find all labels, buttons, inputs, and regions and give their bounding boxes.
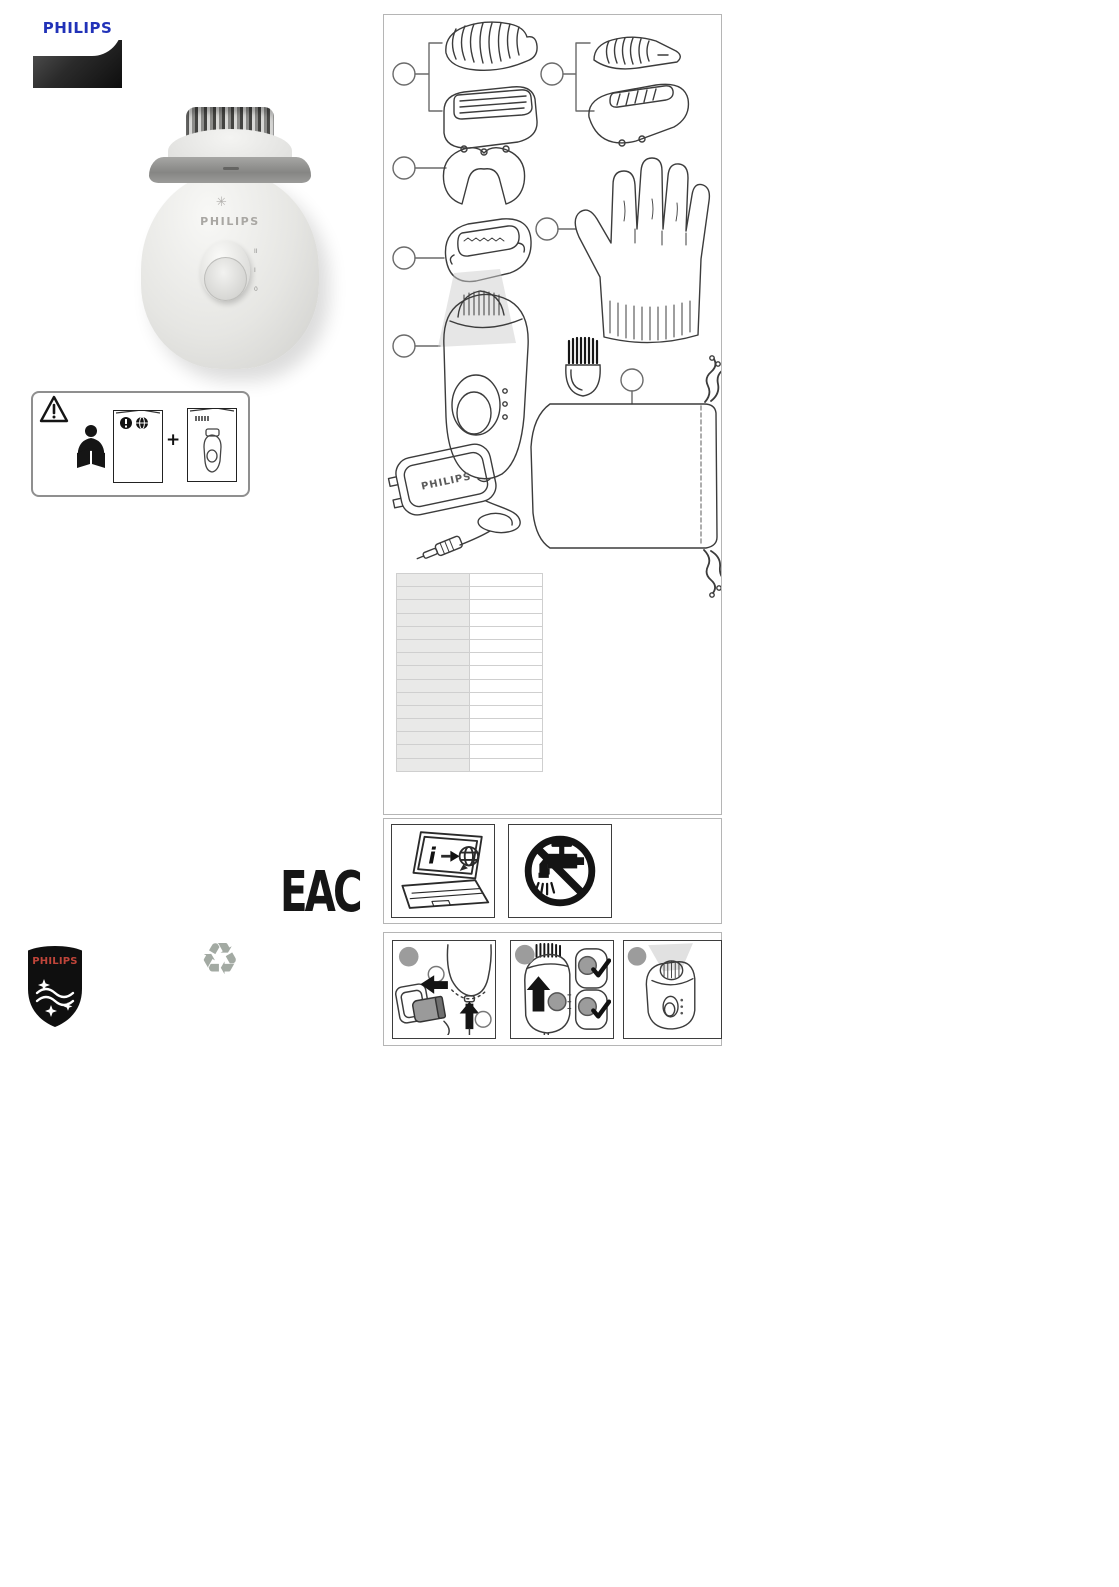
spec-value-cell (470, 719, 543, 732)
spec-label-cell (397, 600, 470, 613)
quick-start-steps-box (383, 932, 722, 1046)
spec-label-cell (397, 732, 470, 745)
reader-icon (73, 424, 109, 468)
spec-value-cell (470, 653, 543, 666)
table-row (397, 679, 543, 692)
massage-cap (443, 148, 524, 204)
adapter-brand-text: PHILIPS (420, 471, 472, 492)
spec-value-cell (470, 600, 543, 613)
svg-text:i: i (428, 844, 436, 870)
package-contents-box: PHILIPS (383, 14, 722, 815)
table-row (397, 653, 543, 666)
philips-wordmark: PHILIPS (43, 19, 113, 37)
plus-sign: + (166, 430, 180, 450)
user-manual-booklet-icon (187, 408, 237, 482)
spec-label-cell (397, 613, 470, 626)
shield-brand-text: PHILIPS (32, 956, 77, 967)
spec-label-cell (397, 692, 470, 705)
spec-label-cell (397, 587, 470, 600)
table-row (397, 758, 543, 771)
philips-logo: PHILIPS (33, 0, 122, 88)
table-row (397, 745, 543, 758)
table-row (397, 732, 543, 745)
light-beam (438, 269, 516, 347)
step-light (623, 940, 722, 1039)
online-info-laptop-icon: i (391, 824, 495, 918)
light-indicator-icon: ✳ (216, 195, 227, 210)
warning-triangle-icon (38, 394, 70, 426)
spec-label-cell (397, 745, 470, 758)
table-row (397, 639, 543, 652)
table-row (397, 626, 543, 639)
info-icons-box: i (383, 818, 722, 924)
dial-mark-1: I (254, 267, 256, 274)
philips-shield-logo: PHILIPS (18, 943, 92, 1031)
step-plug-in (392, 940, 496, 1039)
spec-value-cell (470, 613, 543, 626)
shaving-head (444, 87, 537, 155)
spec-value-cell (470, 666, 543, 679)
step-2-badge (515, 945, 535, 965)
dial-mark-0: 0 (254, 286, 258, 293)
band-slot (223, 167, 239, 170)
device-brand-text: PHILIPS (140, 215, 320, 228)
spec-value-cell (470, 732, 543, 745)
spec-value-cell (470, 639, 543, 652)
spec-label-cell (397, 719, 470, 732)
grey-band (149, 157, 311, 183)
spec-value-cell (470, 574, 543, 587)
epilator-photo: ✳ PHILIPS II I 0 (140, 95, 320, 370)
table-row (397, 613, 543, 626)
safety-booklet-icon (113, 410, 163, 483)
spec-value-cell (470, 587, 543, 600)
table-row (397, 692, 543, 705)
step-3-badge (628, 947, 647, 966)
table-row (397, 705, 543, 718)
spec-value-cell (470, 679, 543, 692)
spec-table (396, 573, 543, 772)
spec-label-cell (397, 758, 470, 771)
spec-table-body (397, 574, 543, 772)
table-row (397, 600, 543, 613)
dial-mark-2: II (254, 248, 258, 255)
eac-mark: EAC (280, 862, 360, 924)
logo-white-panel: PHILIPS (33, 0, 122, 56)
eac-text: EAC (280, 865, 360, 921)
step-1-badge (399, 947, 419, 967)
cleaning-brush (566, 338, 600, 396)
spec-label-cell (397, 574, 470, 587)
spec-value-cell (470, 705, 543, 718)
spec-label-cell (397, 639, 470, 652)
trimming-comb-attachment (594, 37, 680, 69)
spec-value-cell (470, 745, 543, 758)
table-row (397, 719, 543, 732)
spec-value-cell (470, 758, 543, 771)
spec-label-cell (397, 653, 470, 666)
spec-value-cell (470, 692, 543, 705)
spec-label-cell (397, 679, 470, 692)
table-row (397, 587, 543, 600)
power-adapter: PHILIPS (385, 441, 520, 564)
do-not-rinse-icon (508, 824, 612, 918)
spec-label-cell (397, 705, 470, 718)
table-row (397, 666, 543, 679)
recycle-icon: ♻ (200, 938, 239, 982)
spec-label-cell (397, 666, 470, 679)
manual-page: PHILIPS ✳ PHILIPS II I 0 (0, 0, 1119, 1587)
spec-label-cell (397, 626, 470, 639)
shaving-comb-attachment (446, 22, 537, 70)
pouch (531, 356, 721, 597)
glove (575, 158, 709, 343)
step-switch-on (510, 940, 614, 1039)
spec-value-cell (470, 626, 543, 639)
trimming-head (589, 84, 689, 146)
table-row (397, 574, 543, 587)
speed-knob (204, 257, 247, 301)
